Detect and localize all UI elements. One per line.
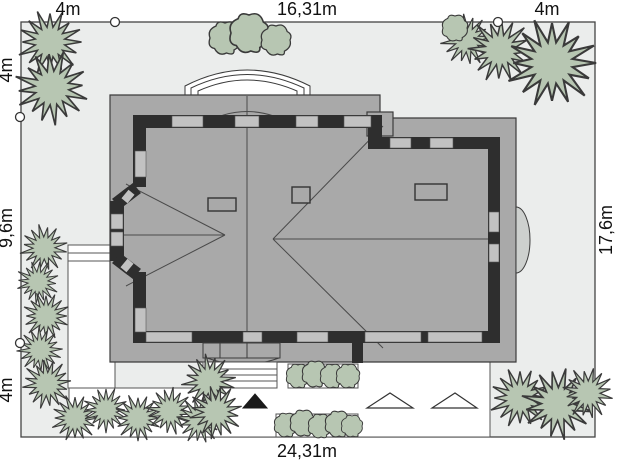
dim-right: 17,6m <box>596 205 616 255</box>
dim-top-center: 16,31m <box>277 0 337 19</box>
boundary-point-left-lower <box>16 339 25 348</box>
dim-top-left: 4m <box>55 0 80 19</box>
boundary-point-left-upper <box>16 113 25 122</box>
terrace <box>68 245 115 388</box>
dim-top-right: 4m <box>534 0 559 19</box>
dim-bottom: 24,31m <box>277 441 337 461</box>
roof <box>110 95 516 362</box>
boundary-point-top-right <box>494 18 503 27</box>
dim-left-middle: 9,6m <box>0 208 16 248</box>
dim-left-upper: 4m <box>0 57 16 82</box>
site-plan-svg: 4m 16,31m 4m 4m 9,6m 4m 17,6m 24,31m <box>0 0 619 461</box>
site-plan: 4m 16,31m 4m 4m 9,6m 4m 17,6m 24,31m <box>0 0 619 461</box>
boundary-point-top-left <box>111 18 120 27</box>
dim-left-lower: 4m <box>0 377 16 402</box>
